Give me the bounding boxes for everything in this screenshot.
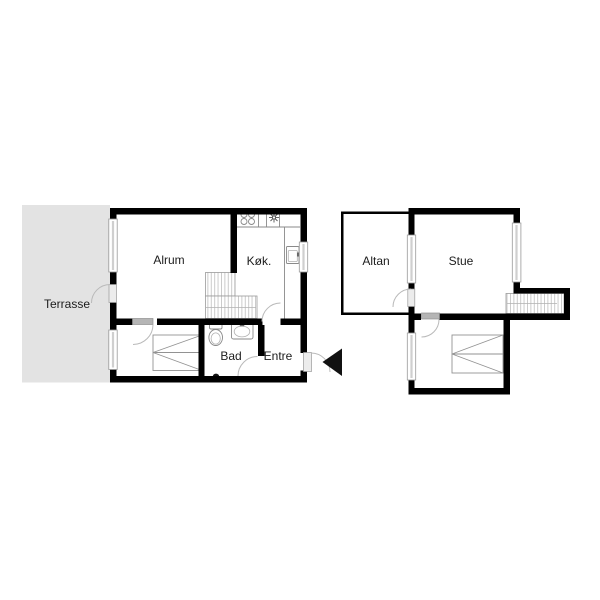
room-label-bad: Bad [220, 349, 241, 363]
terrace-area [22, 205, 110, 383]
room-label-kok: Køk. [247, 254, 272, 268]
window-icon [512, 223, 521, 282]
bed-icon [452, 335, 503, 373]
floor-plan-drawing: Terrasse Alrum Køk. Bad Entre [0, 0, 600, 600]
kitchen-sink-icon [287, 247, 300, 264]
room-label-entre: Entre [264, 349, 293, 363]
window-icon [407, 333, 415, 380]
room-label-terrasse: Terrasse [44, 297, 90, 311]
window-icon [109, 330, 117, 370]
kitchen-hall-door-icon [262, 303, 281, 322]
stairs-icon [506, 294, 564, 314]
upper-bedroom-door-icon [422, 313, 440, 337]
bedroom-door-icon [133, 319, 154, 345]
room-label-altan: Altan [362, 254, 389, 268]
floor-plan-canvas: Terrasse Alrum Køk. Bad Entre [0, 0, 600, 600]
room-label-stue: Stue [449, 254, 474, 268]
entrance-arrow-icon [323, 349, 343, 377]
window-icon [407, 235, 415, 283]
toilet-icon [209, 323, 223, 346]
window-icon [109, 219, 117, 272]
balcony-door-icon [393, 289, 415, 307]
bed-icon [153, 335, 202, 371]
upper-floor-plan: Altan Stue [341, 208, 570, 395]
room-label-alrum: Alrum [153, 253, 184, 267]
window-icon [299, 242, 307, 272]
lower-floor-plan: Terrasse Alrum Køk. Bad Entre [22, 205, 330, 383]
stairs-icon [206, 273, 258, 319]
